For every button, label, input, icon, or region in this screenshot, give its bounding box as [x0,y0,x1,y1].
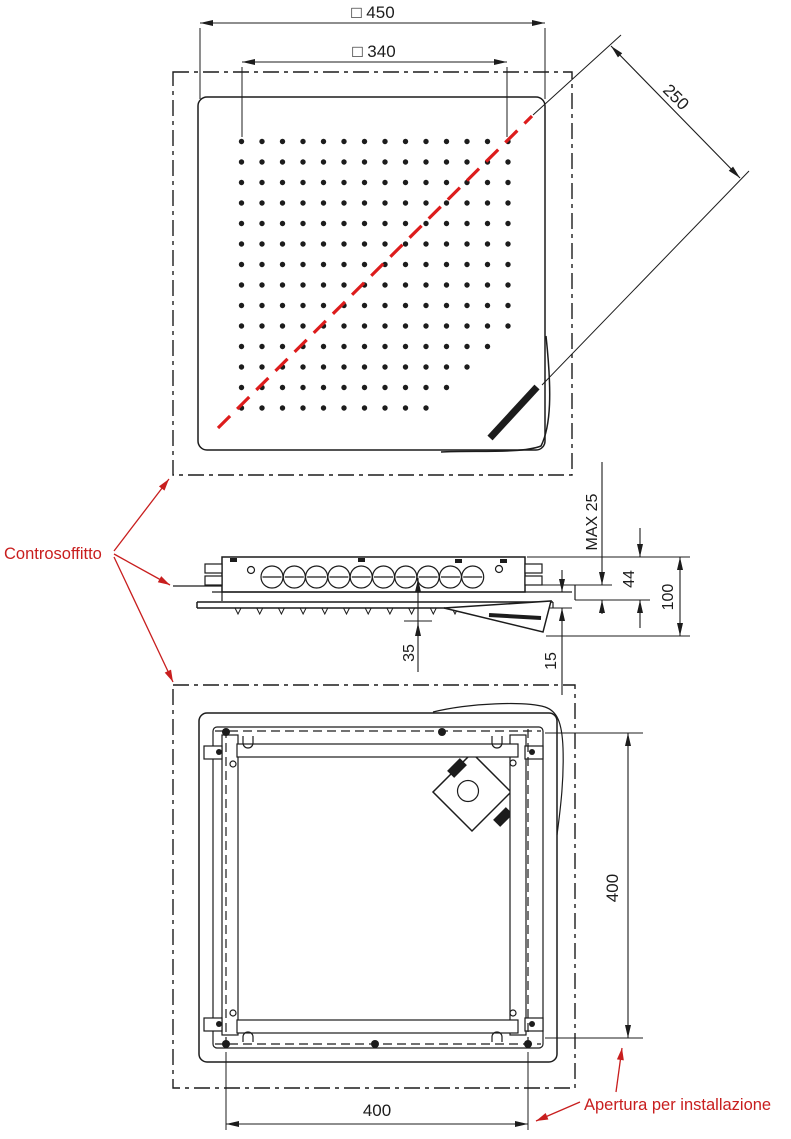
dim-max25-label: MAX 25 [584,493,601,550]
dim-44-label: 44 [621,570,638,588]
technical-drawing-page: 250 □ 450 □ 340 [0,0,791,1139]
dim-400-horizontal-label: 400 [363,1101,391,1120]
dim-450-label: □ 450 [351,3,394,22]
apertura-label: Apertura per installazione [584,1096,771,1114]
dim-400-vertical-label: 400 [603,874,622,902]
dim-15-label: 15 [543,652,560,670]
dim-35-label: 35 [401,644,418,662]
shower-installation-drawing: 250 □ 450 □ 340 [0,0,791,1139]
dim-100-label: 100 [660,584,677,611]
controsoffitto-label: Controsoffitto [4,545,102,563]
dim-340-label: □ 340 [352,42,395,61]
